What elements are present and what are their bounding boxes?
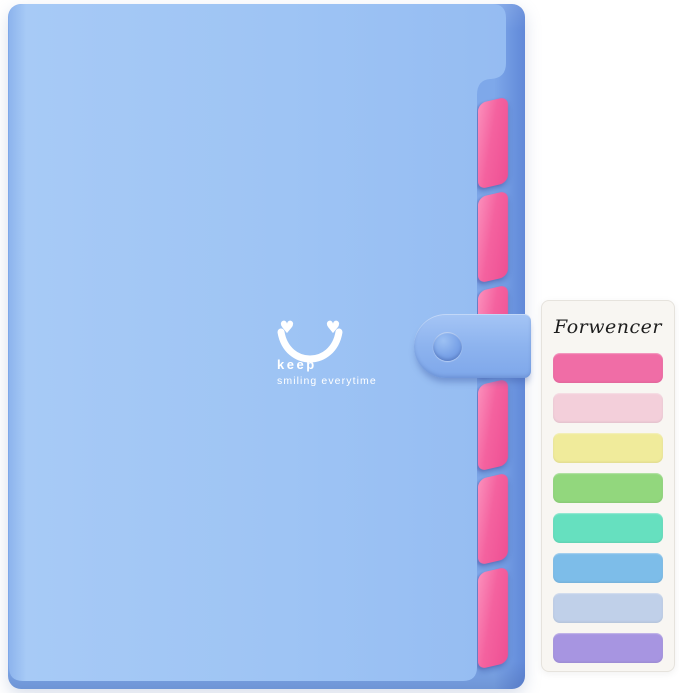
- index-tab-swatch: [553, 353, 663, 383]
- divider-tabs: [478, 100, 508, 670]
- divider-tab: [478, 379, 508, 472]
- index-tab-swatch: [553, 633, 663, 663]
- index-tab-swatch: [553, 393, 663, 423]
- index-tab-card: Forwencer: [541, 300, 675, 672]
- divider-tab: [478, 473, 508, 566]
- divider-tab: [478, 567, 508, 670]
- snap-button-icon: [433, 332, 462, 361]
- divider-tab: [478, 97, 508, 190]
- index-tab-swatch: [553, 433, 663, 463]
- index-tab-swatches: [542, 353, 674, 663]
- index-tab-swatch: [553, 553, 663, 583]
- divider-tab: [478, 191, 508, 284]
- index-tab-swatch: [553, 473, 663, 503]
- index-tab-swatch: [553, 593, 663, 623]
- product-photo: ♥ ♥ keep smiling everytime Forwencer: [0, 0, 679, 693]
- brand-title: Forwencer: [542, 316, 674, 342]
- snap-strap: [414, 314, 531, 378]
- index-tab-swatch: [553, 513, 663, 543]
